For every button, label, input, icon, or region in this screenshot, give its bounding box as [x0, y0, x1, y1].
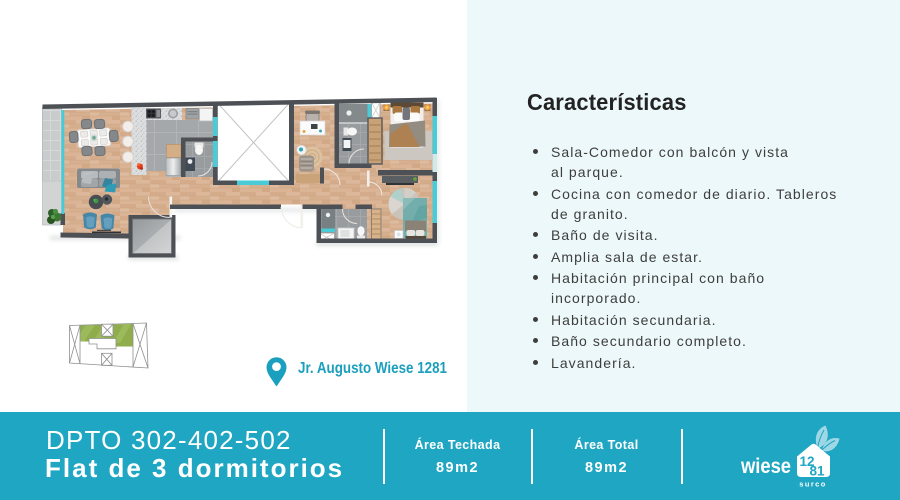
svg-text:Jr. Augusto Wiese 1281: Jr. Augusto Wiese 1281: [298, 360, 447, 377]
